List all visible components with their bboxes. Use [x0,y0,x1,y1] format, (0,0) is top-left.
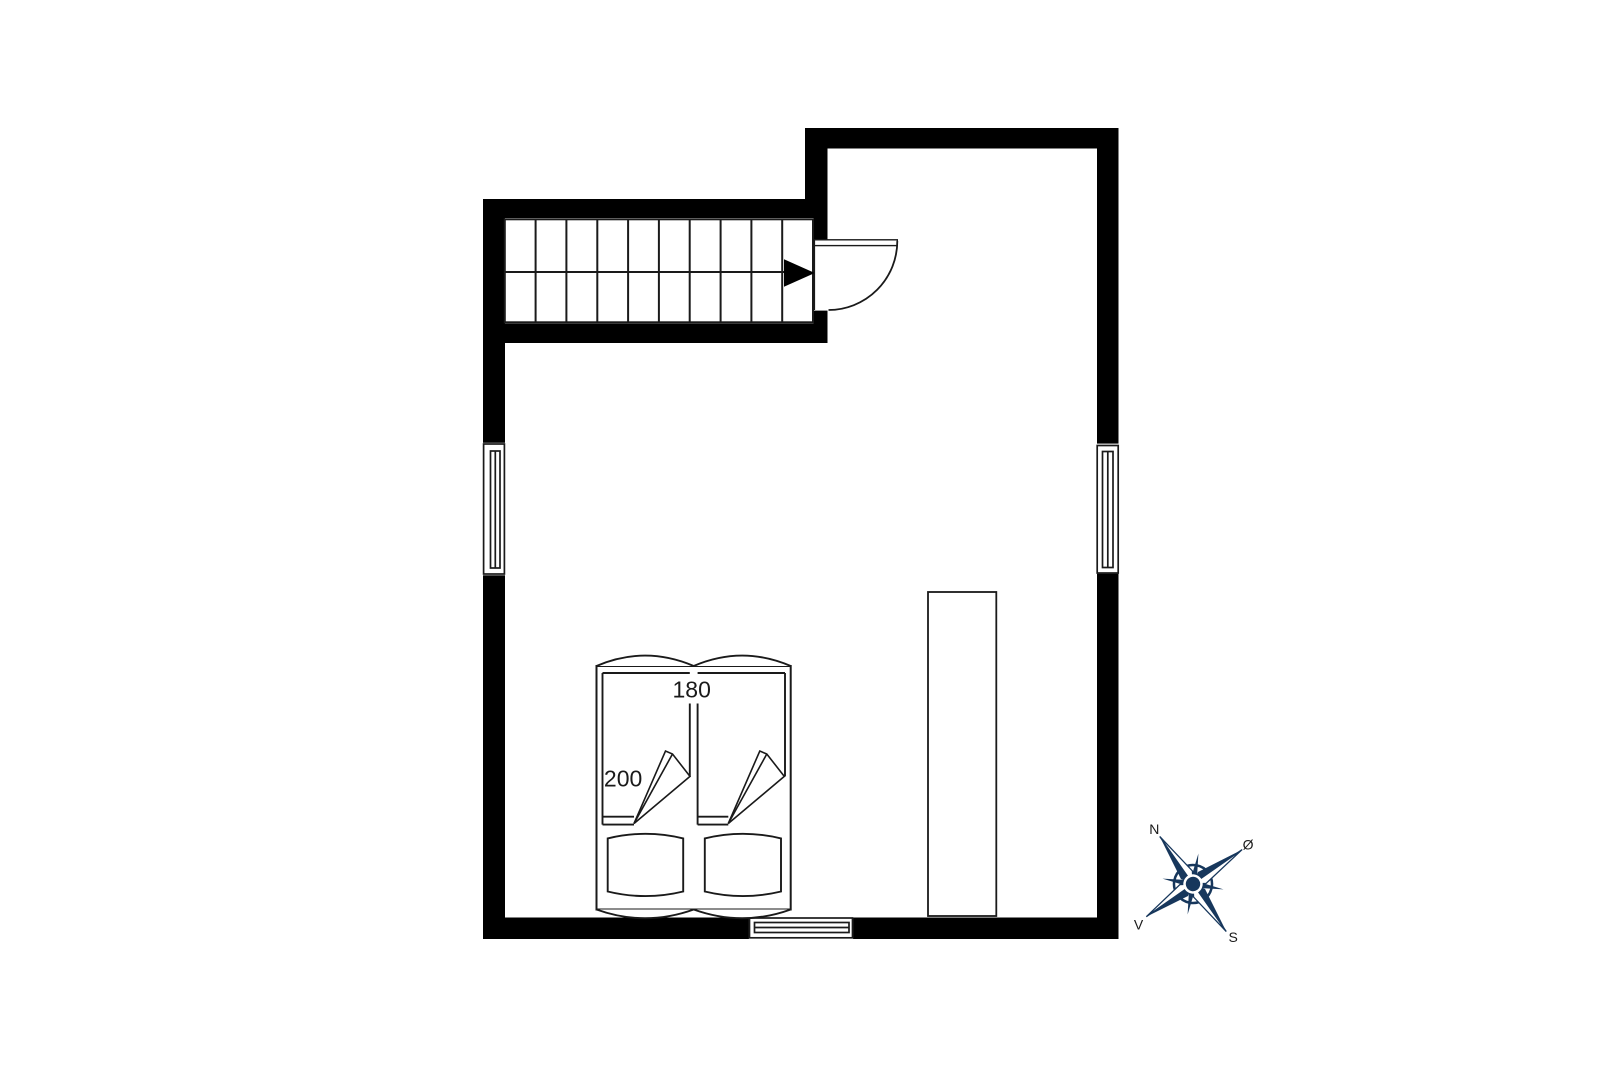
svg-text:S: S [1229,929,1238,945]
svg-text:Ø: Ø [1243,836,1254,852]
svg-text:200: 200 [604,766,642,792]
svg-text:V: V [1134,916,1144,932]
svg-text:N: N [1149,821,1159,837]
svg-text:180: 180 [673,677,711,703]
